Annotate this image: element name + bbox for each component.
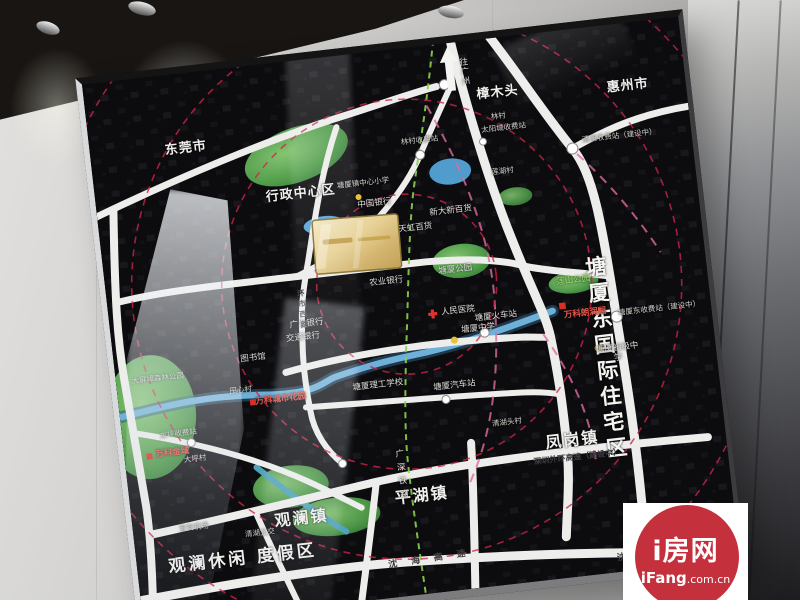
label-to-guangzhou: 往广州 bbox=[457, 57, 470, 86]
watermark-site: iFang.com.cn bbox=[623, 569, 748, 587]
spotlight-icon bbox=[437, 4, 465, 20]
watermark-site-bold: iFang bbox=[641, 569, 687, 587]
vanke-logo-icon bbox=[146, 453, 153, 460]
suncity-toll-dot bbox=[479, 138, 487, 146]
glass-seam bbox=[748, 0, 781, 599]
bus-station-dot bbox=[442, 395, 451, 404]
lincun-toll-dot bbox=[415, 150, 425, 160]
watermark-card: i房网 iFang.com.cn bbox=[623, 503, 748, 600]
project-plaque bbox=[311, 214, 401, 275]
junction-dot bbox=[338, 459, 347, 468]
watermark-site-rest: .com.cn bbox=[687, 573, 731, 586]
showroom-photo: 东莞市 惠州市 樟木头 行政中心区 塘厦东国际住宅区 凤岗镇 平湖镇 观澜镇 观… bbox=[0, 0, 800, 600]
vanke-logo-icon bbox=[559, 302, 566, 309]
label-village-lincun: 林村 bbox=[490, 112, 506, 122]
watermark-title: i房网 bbox=[623, 529, 748, 568]
